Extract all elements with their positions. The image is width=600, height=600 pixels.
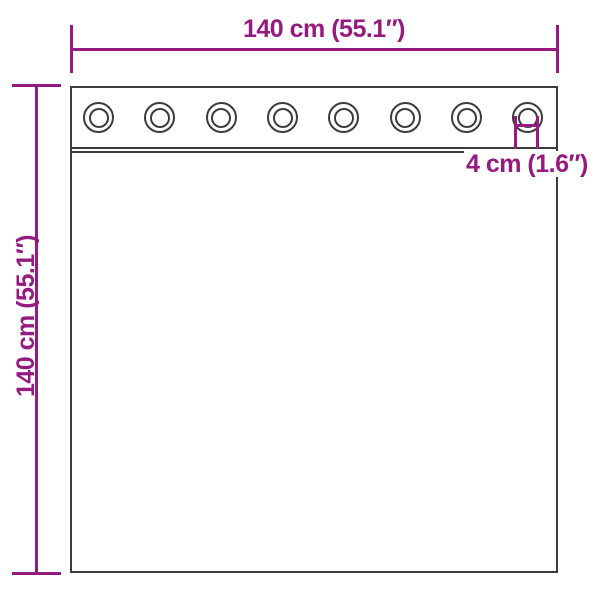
grommet-inner-ring	[89, 108, 109, 128]
grommet-diameter-label: 4 cm (1.6″)	[464, 151, 590, 177]
grommet-inner-ring	[457, 108, 477, 128]
grommet-eyelet	[390, 102, 421, 133]
grommet-inner-ring	[150, 108, 170, 128]
height-dimension-label: 140 cm (55.1″)	[13, 182, 39, 450]
grommet-inner-ring	[211, 108, 231, 128]
header-seam-line-upper	[70, 147, 558, 149]
grommet-eyelet	[267, 102, 298, 133]
grommet-eyelet	[83, 102, 114, 133]
grommet-eyelet	[451, 102, 482, 133]
width-dimension-line	[71, 48, 558, 51]
height-dimension-tick-bottom	[12, 572, 61, 575]
dimension-diagram: 140 cm (55.1″) 140 cm (55.1″) 4 cm (1.6″…	[0, 0, 600, 600]
grommet-diameter-bracket-bar	[514, 124, 539, 127]
width-dimension-tick-right	[556, 25, 559, 73]
grommet-inner-ring	[395, 108, 415, 128]
height-dimension-tick-top	[12, 84, 61, 87]
grommet-eyelet	[206, 102, 237, 133]
grommet-diameter-bracket-left	[514, 116, 517, 149]
grommet-diameter-bracket-right	[536, 116, 539, 149]
width-dimension-label: 140 cm (55.1″)	[190, 16, 458, 42]
grommet-inner-ring	[334, 108, 354, 128]
width-dimension-tick-left	[70, 25, 73, 73]
grommet-inner-ring	[273, 108, 293, 128]
